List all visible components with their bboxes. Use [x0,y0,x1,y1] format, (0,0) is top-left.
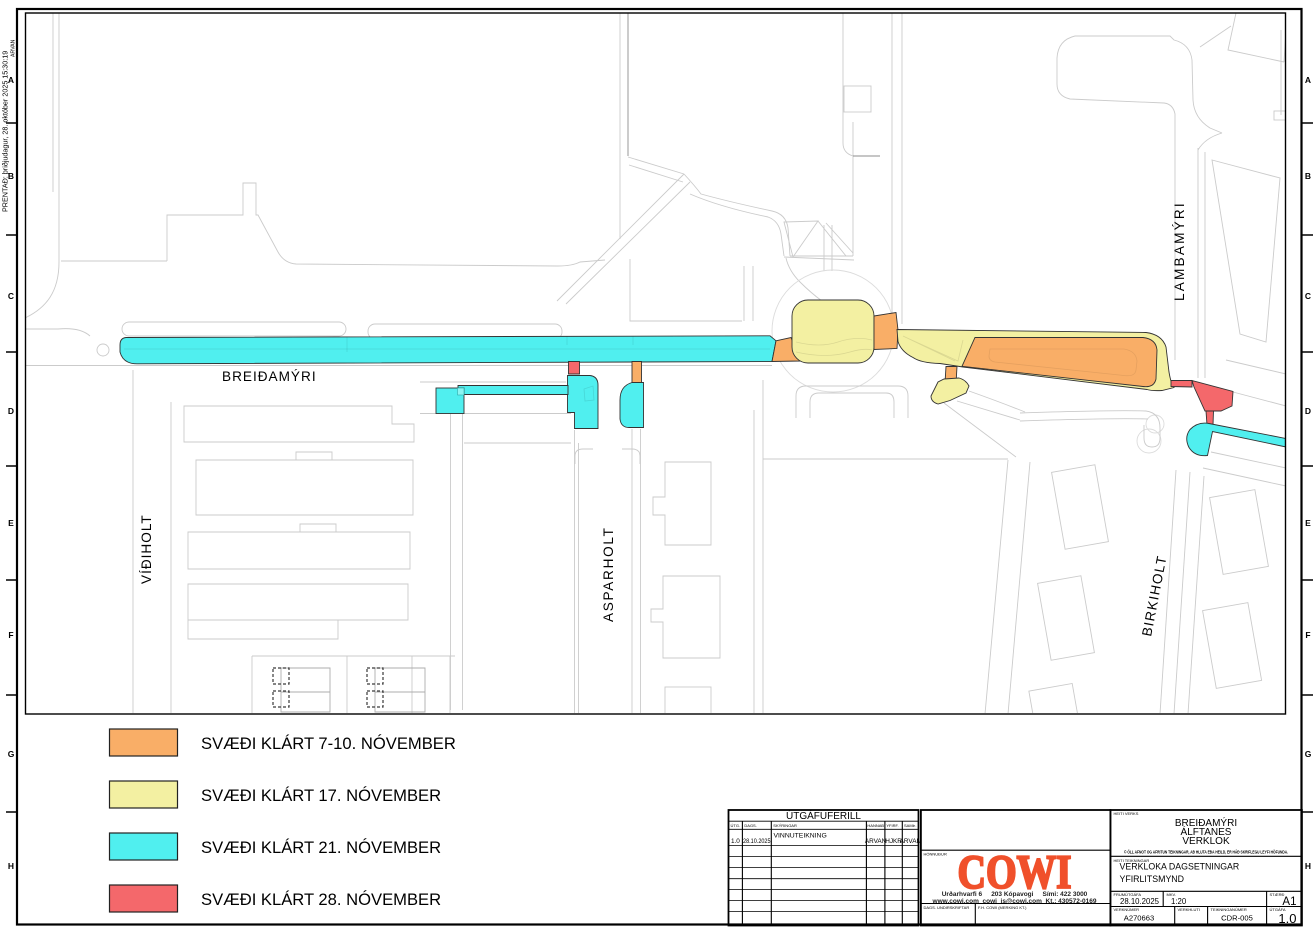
svg-text:CDR-005: CDR-005 [1221,914,1253,923]
svg-text:HEITI VERKS: HEITI VERKS [1114,811,1139,816]
svg-text:ARVAN: ARVAN [900,838,922,845]
svg-text:BREIÐAMÝRI: BREIÐAMÝRI [222,369,317,384]
svg-text:TEIKNINGANÚMER: TEIKNINGANÚMER [1211,907,1247,912]
svg-text:ARVAN: ARVAN [11,39,17,57]
svg-text:1.0: 1.0 [731,838,740,845]
svg-text:B: B [1305,171,1311,181]
svg-text:PRENTAÐ: þriðjudagur, 28. okt: PRENTAÐ: þriðjudagur, 28. október 2025 1… [1,51,10,212]
svg-text:YFIRLITSMYND: YFIRLITSMYND [1120,874,1185,884]
svg-text:F: F [8,630,13,640]
svg-text:D: D [1305,406,1311,416]
svg-text:HANNAÐ: HANNAÐ [867,823,884,828]
svg-text:SVÆÐI KLÁRT 7-10. NÓVEMBER: SVÆÐI KLÁRT 7-10. NÓVEMBER [201,734,456,753]
svg-text:VERKNÚMER: VERKNÚMER [1114,907,1140,912]
svg-text:DAGS. UNDIRSKRIFTAR: DAGS. UNDIRSKRIFTAR [924,905,970,910]
svg-text:A270663: A270663 [1124,914,1154,923]
svg-text:VERKHLUTI: VERKHLUTI [1178,907,1200,912]
svg-text:VERKLOK: VERKLOK [1182,836,1230,847]
svg-text:28.10.2025: 28.10.2025 [1120,897,1160,906]
svg-text:1.0: 1.0 [1278,911,1296,926]
svg-text:LAMBAMÝRI: LAMBAMÝRI [1172,201,1187,301]
svg-text:H: H [1305,861,1311,871]
svg-text:SKÝRINGAR: SKÝRINGAR [773,823,797,828]
svg-text:G: G [1305,749,1312,759]
svg-text:H: H [8,861,14,871]
svg-text:F: F [1305,630,1310,640]
svg-text:VERKLOKA DAGSETNINGAR: VERKLOKA DAGSETNINGAR [1120,862,1240,872]
svg-text:VINNUTEIKNING: VINNUTEIKNING [774,833,827,840]
svg-text:C: C [1305,291,1311,301]
svg-text:F.H. COWI (MERKING KT.): F.H. COWI (MERKING KT.) [978,905,1027,910]
svg-text:ÚTG.: ÚTG. [731,823,741,828]
svg-text:ASPARHOLT: ASPARHOLT [601,526,616,622]
svg-text:HÖNNUÐUR: HÖNNUÐUR [924,851,947,856]
svg-text:C: C [8,291,14,301]
svg-text:SAMÞ.: SAMÞ. [904,823,916,828]
svg-text:DAGS.: DAGS. [744,823,756,828]
svg-text:E: E [1305,518,1311,528]
svg-text:Urðarhvarfi 6 203 Kópavogi: Urðarhvarfi 6 203 Kópavogi Sími: 422 300… [942,890,1088,898]
svg-text:SVÆÐI KLÁRT 21. NÓVEMBER: SVÆÐI KLÁRT 21. NÓVEMBER [201,838,441,857]
svg-text:© ÖLL AFNOT OG AFRITUN TEIKNIN: © ÖLL AFNOT OG AFRITUN TEIKNINGAR, AÐ HL… [1124,850,1288,855]
svg-text:A: A [1305,75,1311,85]
svg-text:YFIRF.: YFIRF. [886,823,898,828]
svg-text:SVÆÐI KLÁRT 17. NÓVEMBER: SVÆÐI KLÁRT 17. NÓVEMBER [201,786,441,805]
svg-text:1:20: 1:20 [1171,897,1187,906]
svg-text:ARVAN: ARVAN [865,838,887,845]
svg-text:VÍÐIHOLT: VÍÐIHOLT [139,514,154,584]
svg-text:28.10.2025: 28.10.2025 [743,838,771,845]
svg-text:G: G [8,749,15,759]
svg-text:D: D [8,406,14,416]
svg-text:SVÆÐI KLÁRT 28. NÓVEMBER: SVÆÐI KLÁRT 28. NÓVEMBER [201,890,441,909]
svg-text:E: E [8,518,14,528]
svg-text:ÚTGÁFUFERILL: ÚTGÁFUFERILL [786,809,861,822]
